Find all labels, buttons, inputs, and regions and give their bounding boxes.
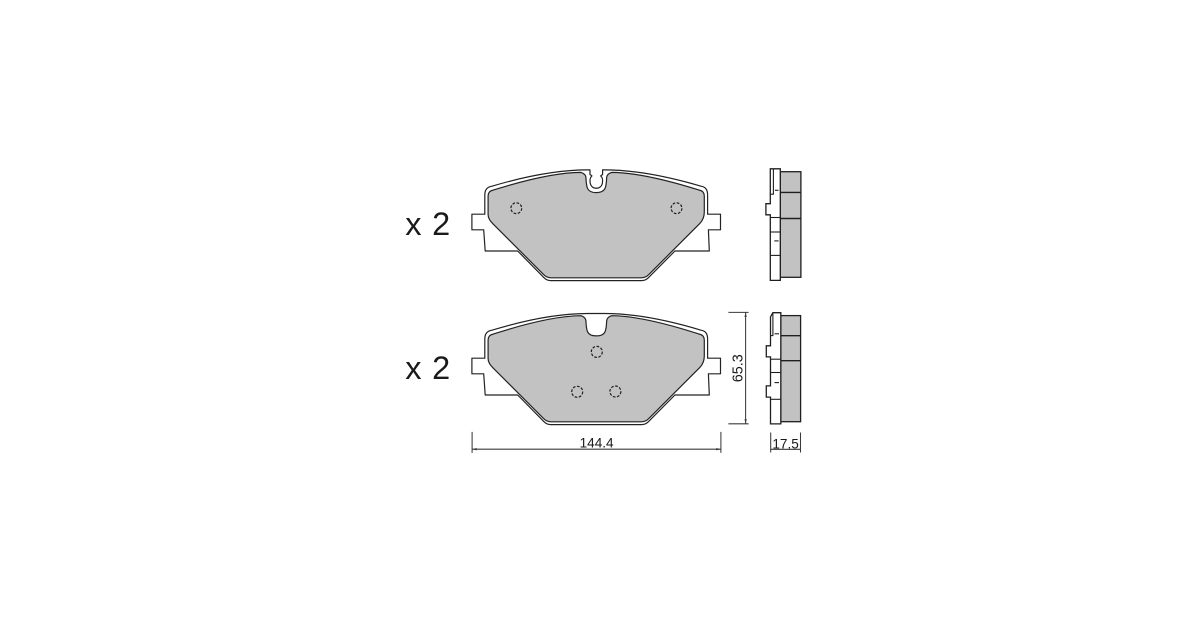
svg-text:17.5: 17.5	[772, 437, 798, 452]
svg-text:x 2: x 2	[405, 206, 451, 242]
svg-text:144.4: 144.4	[580, 436, 614, 451]
svg-text:65.3: 65.3	[731, 354, 747, 382]
svg-text:x 2: x 2	[405, 350, 451, 386]
